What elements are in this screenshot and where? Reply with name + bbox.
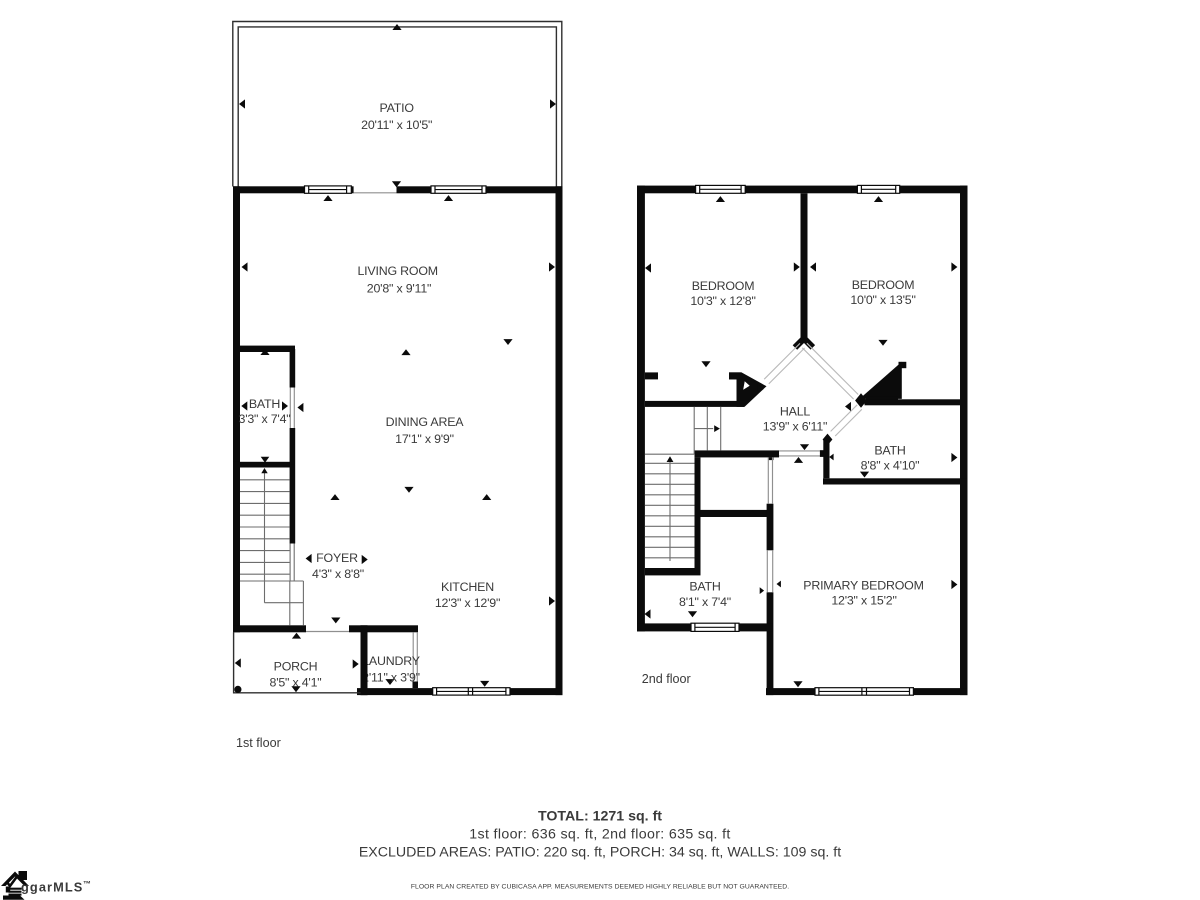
svg-text:17'1" x 9'9": 17'1" x 9'9" (395, 432, 454, 446)
svg-text:BEDROOM: BEDROOM (692, 279, 755, 293)
svg-text:13'9" x 6'11": 13'9" x 6'11" (763, 419, 827, 433)
svg-text:BEDROOM: BEDROOM (852, 278, 915, 292)
svg-text:4'3" x 8'8": 4'3" x 8'8" (312, 567, 364, 581)
svg-text:8'1" x 7'4": 8'1" x 7'4" (679, 595, 731, 609)
svg-text:2nd floor: 2nd floor (642, 672, 691, 686)
svg-text:PATIO: PATIO (380, 101, 415, 115)
svg-text:20'8" x 9'11": 20'8" x 9'11" (367, 281, 431, 295)
svg-text:ggarMLS: ggarMLS (21, 880, 83, 895)
svg-text:LAUNDRY: LAUNDRY (362, 654, 420, 668)
svg-text:1st floor: 636 sq. ft, 2nd flo: 1st floor: 636 sq. ft, 2nd floor: 635 sq… (469, 826, 730, 842)
svg-text:12'3" x 15'2": 12'3" x 15'2" (831, 594, 896, 608)
svg-text:DINING AREA: DINING AREA (386, 415, 465, 429)
svg-text:BATH: BATH (689, 580, 720, 594)
svg-text:8'8" x 4'10": 8'8" x 4'10" (861, 459, 920, 473)
svg-text:BATH: BATH (874, 444, 905, 458)
svg-text:FOYER: FOYER (316, 551, 358, 565)
svg-text:KITCHEN: KITCHEN (441, 580, 494, 594)
svg-text:3'3" x 7'4": 3'3" x 7'4" (239, 412, 291, 426)
svg-text:1st floor: 1st floor (236, 736, 281, 750)
svg-text:10'0" x 13'5": 10'0" x 13'5" (850, 293, 915, 307)
svg-text:8'5" x 4'1": 8'5" x 4'1" (270, 675, 322, 689)
svg-text:20'11" x 10'5": 20'11" x 10'5" (361, 118, 432, 132)
svg-text:BATH: BATH (249, 397, 280, 411)
svg-text:™: ™ (83, 880, 91, 889)
svg-text:HALL: HALL (780, 405, 811, 419)
svg-text:10'3" x 12'8": 10'3" x 12'8" (690, 294, 755, 308)
svg-text:12'3" x 12'9": 12'3" x 12'9" (435, 596, 500, 610)
svg-text:EXCLUDED AREAS: PATIO: 220 sq.: EXCLUDED AREAS: PATIO: 220 sq. ft, PORCH… (359, 844, 841, 860)
svg-text:PRIMARY BEDROOM: PRIMARY BEDROOM (803, 579, 923, 593)
svg-text:TOTAL: 1271 sq. ft: TOTAL: 1271 sq. ft (538, 808, 662, 824)
svg-text:2'11" x 3'9": 2'11" x 3'9" (362, 670, 420, 684)
svg-text:LIVING ROOM: LIVING ROOM (357, 264, 437, 278)
svg-text:FLOOR PLAN CREATED BY CUBICASA: FLOOR PLAN CREATED BY CUBICASA APP. MEAS… (411, 884, 789, 891)
svg-text:PORCH: PORCH (274, 659, 318, 673)
